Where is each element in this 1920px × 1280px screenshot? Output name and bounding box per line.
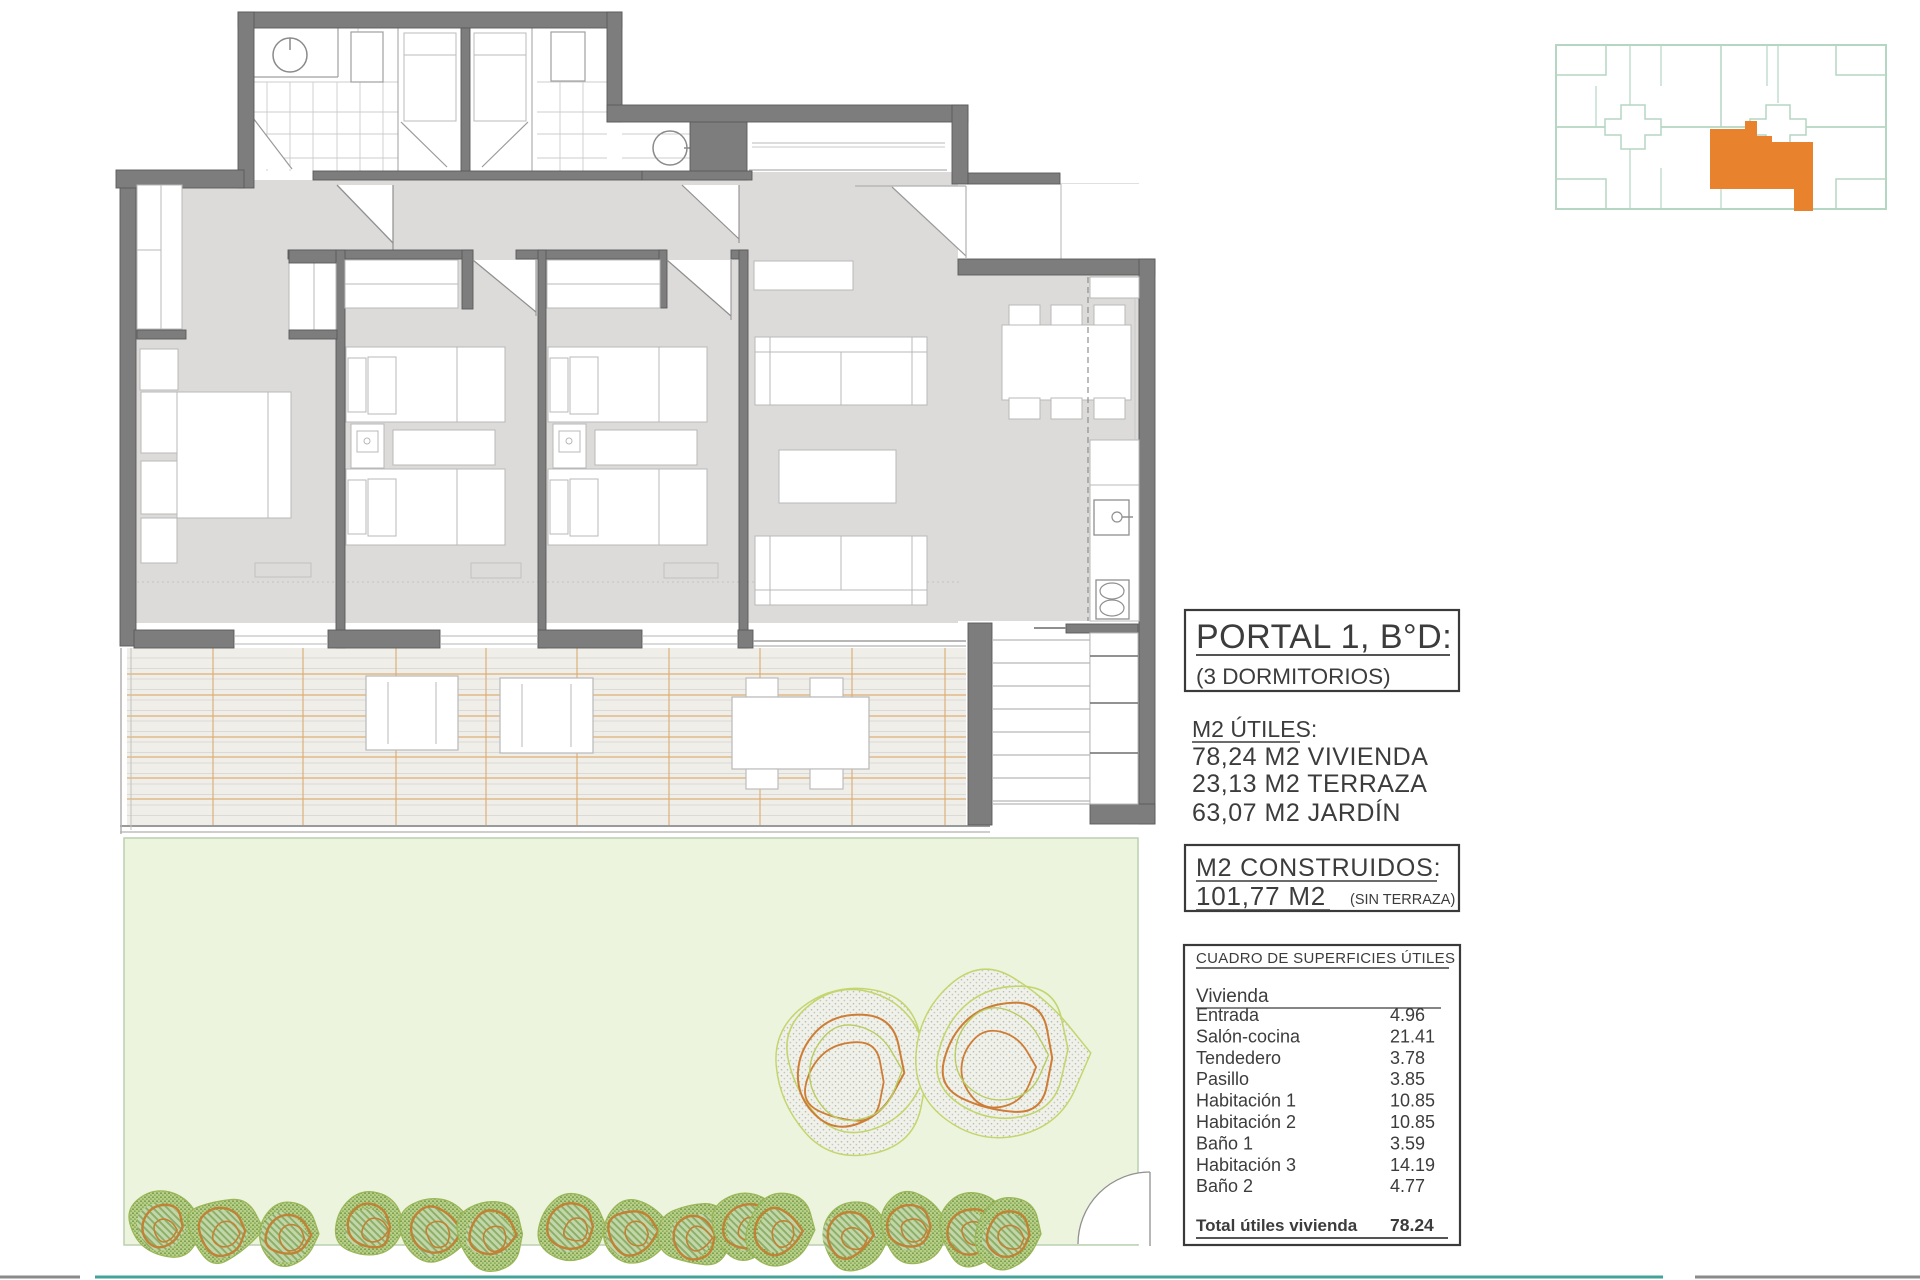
svg-text:3.59: 3.59: [1390, 1133, 1425, 1153]
svg-text:3.85: 3.85: [1390, 1069, 1425, 1089]
svg-text:21.41: 21.41: [1390, 1026, 1435, 1046]
svg-text:Salón-cocina: Salón-cocina: [1196, 1026, 1301, 1046]
svg-text:Tendedero: Tendedero: [1196, 1048, 1281, 1068]
svg-text:PORTAL 1, B°D:: PORTAL 1, B°D:: [1196, 618, 1452, 656]
svg-text:Total útiles vivienda: Total útiles vivienda: [1196, 1216, 1358, 1235]
svg-text:10.85: 10.85: [1390, 1112, 1435, 1132]
svg-text:Entrada: Entrada: [1196, 1005, 1260, 1025]
svg-text:4.77: 4.77: [1390, 1176, 1425, 1196]
svg-text:Habitación 3: Habitación 3: [1196, 1155, 1296, 1175]
svg-text:Vivienda: Vivienda: [1196, 986, 1269, 1007]
svg-text:78.24: 78.24: [1390, 1215, 1434, 1235]
svg-text:(SIN TERRAZA): (SIN TERRAZA): [1350, 892, 1455, 908]
svg-text:CUADRO DE SUPERFICIES ÚTILES: CUADRO DE SUPERFICIES ÚTILES: [1196, 950, 1455, 967]
svg-text:10.85: 10.85: [1390, 1091, 1435, 1111]
svg-text:M2 ÚTILES:: M2 ÚTILES:: [1192, 716, 1317, 742]
svg-text:M2 CONSTRUIDOS:: M2 CONSTRUIDOS:: [1196, 854, 1441, 882]
svg-text:63,07 M2 JARDÍN: 63,07 M2 JARDÍN: [1192, 798, 1401, 827]
svg-text:101,77 M2: 101,77 M2: [1196, 881, 1326, 911]
svg-text:23,13 M2 TERRAZA: 23,13 M2 TERRAZA: [1192, 770, 1427, 798]
svg-text:Pasillo: Pasillo: [1196, 1069, 1249, 1089]
svg-text:14.19: 14.19: [1390, 1155, 1435, 1175]
svg-text:Baño 2: Baño 2: [1196, 1176, 1253, 1196]
svg-text:Habitación 2: Habitación 2: [1196, 1112, 1296, 1132]
svg-text:78,24 M2 VIVIENDA: 78,24 M2 VIVIENDA: [1192, 743, 1428, 771]
svg-text:4.96: 4.96: [1390, 1005, 1425, 1025]
svg-text:(3 DORMITORIOS): (3 DORMITORIOS): [1196, 664, 1391, 689]
svg-text:3.78: 3.78: [1390, 1048, 1425, 1068]
svg-text:Habitación 1: Habitación 1: [1196, 1091, 1296, 1111]
svg-text:Baño 1: Baño 1: [1196, 1133, 1253, 1153]
